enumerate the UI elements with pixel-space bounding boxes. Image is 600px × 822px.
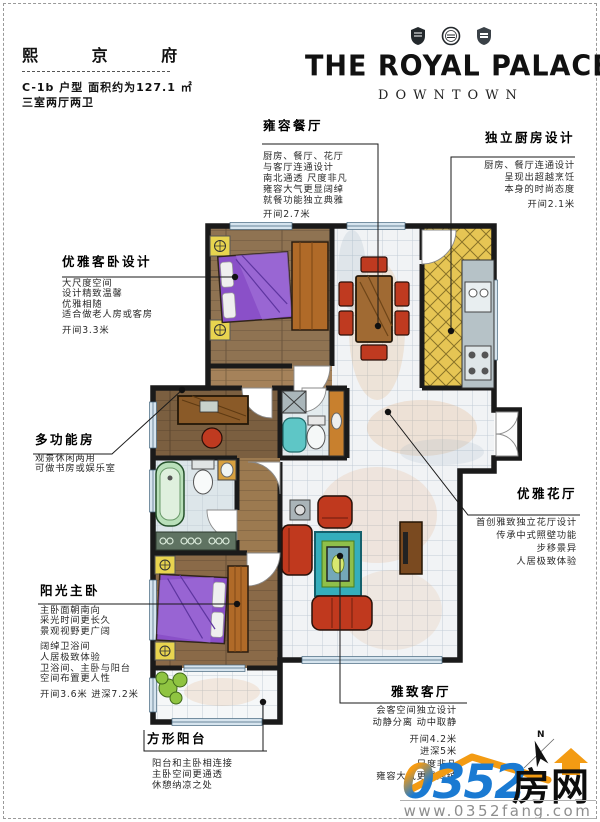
dining-chair	[361, 257, 387, 272]
dining-chair	[395, 311, 409, 335]
dimension-label: 开间2.1米	[484, 200, 575, 211]
brand-title: THE ROYAL PALACE	[305, 50, 597, 83]
unit-spec-line1: C-1b 户型 面积约为127.1 ㎡	[22, 80, 201, 95]
toilet	[194, 470, 213, 494]
callout-master-bedroom: 阳光主卧 主卧面朝南向 采光时间更长久 景观视野更广阔 阔绰卫浴间 人居极致体验…	[40, 586, 139, 700]
kitchen-furniture	[462, 260, 494, 388]
header-left: 熙 京 府 C-1b 户型 面积约为127.1 ㎡ 三室两厅两卫	[22, 42, 201, 110]
callout-guest-bedroom: 优雅客卧设计 大尺度空间 设计精致温馨 优雅相随 适合做老人房或客房 开间3.3…	[62, 257, 153, 337]
logo-cn-text: 房网	[512, 770, 590, 804]
dimension-label: 开间2.7米	[263, 210, 348, 221]
callout-title: 雅致客厅	[372, 687, 451, 698]
callout-dining: 雍容餐厅 厨房、餐厅、花厅 与客厅连通设计 南北通透 尺度非凡 雍容大气更显阔绰…	[263, 121, 348, 220]
stove	[465, 346, 491, 380]
wardrobe	[292, 242, 328, 330]
callout-kitchen: 独立厨房设计 厨房、餐厅连通设计 呈现出超越烹饪 本身的时尚态度 开间2.1米	[484, 133, 575, 210]
url-rule-bottom	[400, 818, 596, 819]
toilet	[307, 425, 325, 449]
title-dashed-underline	[22, 71, 170, 72]
callout-title: 多功能房	[35, 435, 116, 446]
dining-chair	[339, 282, 353, 306]
sofa	[282, 525, 312, 575]
kitchen-sink	[465, 282, 491, 312]
master-wardrobe	[228, 566, 248, 652]
dimension-label: 开间3.3米	[62, 326, 153, 337]
callout-title: 优雅花厅	[476, 489, 577, 500]
floor-plan	[142, 210, 522, 750]
url-rule-top	[400, 800, 596, 801]
master-bed	[156, 574, 227, 643]
project-name: 熙 京 府	[22, 42, 201, 66]
shower	[283, 418, 306, 452]
bath-counter	[156, 532, 236, 550]
guest-bed	[218, 252, 292, 323]
desk-chair	[202, 428, 222, 448]
sofa-large	[312, 596, 372, 630]
brand-emblems	[305, 24, 597, 46]
dining-chair	[395, 282, 409, 306]
callout-balcony-title: 方形阳台	[147, 734, 207, 745]
tv	[403, 532, 408, 564]
armchair	[318, 496, 352, 528]
callout-title: 优雅客卧设计	[62, 257, 153, 268]
crest-emblem-icon	[476, 26, 492, 46]
dining-chair	[361, 345, 387, 360]
dining-chair	[339, 311, 353, 335]
logo-number: 0352	[402, 763, 525, 803]
unit-spec-line2: 三室两厅两卫	[22, 95, 201, 110]
callout-title: 方形阳台	[147, 734, 207, 745]
compass-north-label: N	[537, 730, 545, 740]
callout-title: 雍容餐厅	[263, 121, 348, 132]
callout-balcony-body: 阳台和主卧相连接 主卧空间更通透 休憩纳凉之处	[152, 758, 233, 791]
callout-title: 阳光主卧	[40, 586, 139, 597]
callout-flower-hall: 优雅花厅 首创雅致独立花厅设计 传承中式照壁功能 步移景异 人居极致体验	[476, 489, 577, 568]
dimension-label: 开间3.6米 进深7.2米	[40, 690, 139, 701]
round-seal-emblem-icon	[441, 26, 461, 46]
sink	[332, 413, 342, 429]
shield-emblem-icon	[410, 26, 426, 46]
callout-title: 独立厨房设计	[484, 133, 575, 144]
floor-plan-poster: { "header": { "project_name": "熙 京 府", "…	[0, 0, 600, 822]
callout-multi-room: 多功能房 观景休闲两用 可做书房或娱乐室	[35, 435, 116, 475]
brand-block: THE ROYAL PALACE DOWNTOWN	[305, 24, 597, 103]
brand-subtitle: DOWNTOWN	[305, 88, 597, 103]
